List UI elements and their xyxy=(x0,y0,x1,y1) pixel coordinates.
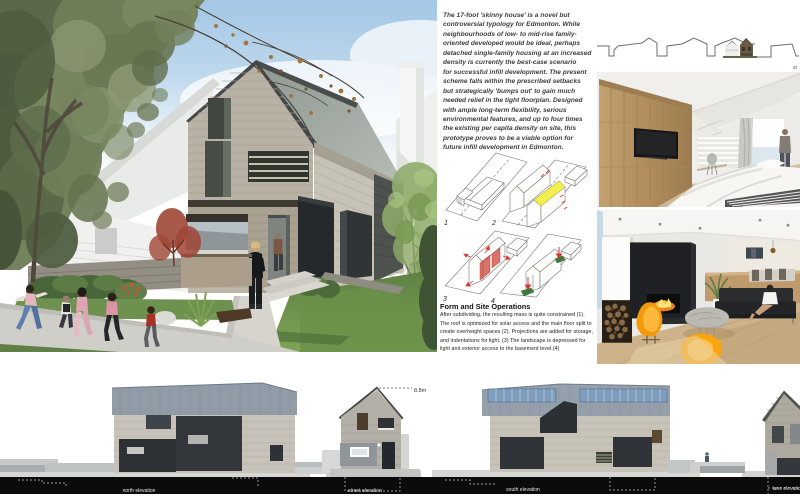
svg-text:8.8m: 8.8m xyxy=(414,388,427,394)
svg-text:street elevation: street elevation xyxy=(348,488,382,494)
svg-text:south elevation: south elevation xyxy=(506,487,540,493)
svg-text:north elevation: north elevation xyxy=(123,488,156,494)
svg-text:st: st xyxy=(793,65,798,70)
svg-text:2: 2 xyxy=(491,220,496,227)
svg-text:1: 1 xyxy=(444,220,448,227)
svg-text:lane elevation: lane elevation xyxy=(773,486,800,492)
